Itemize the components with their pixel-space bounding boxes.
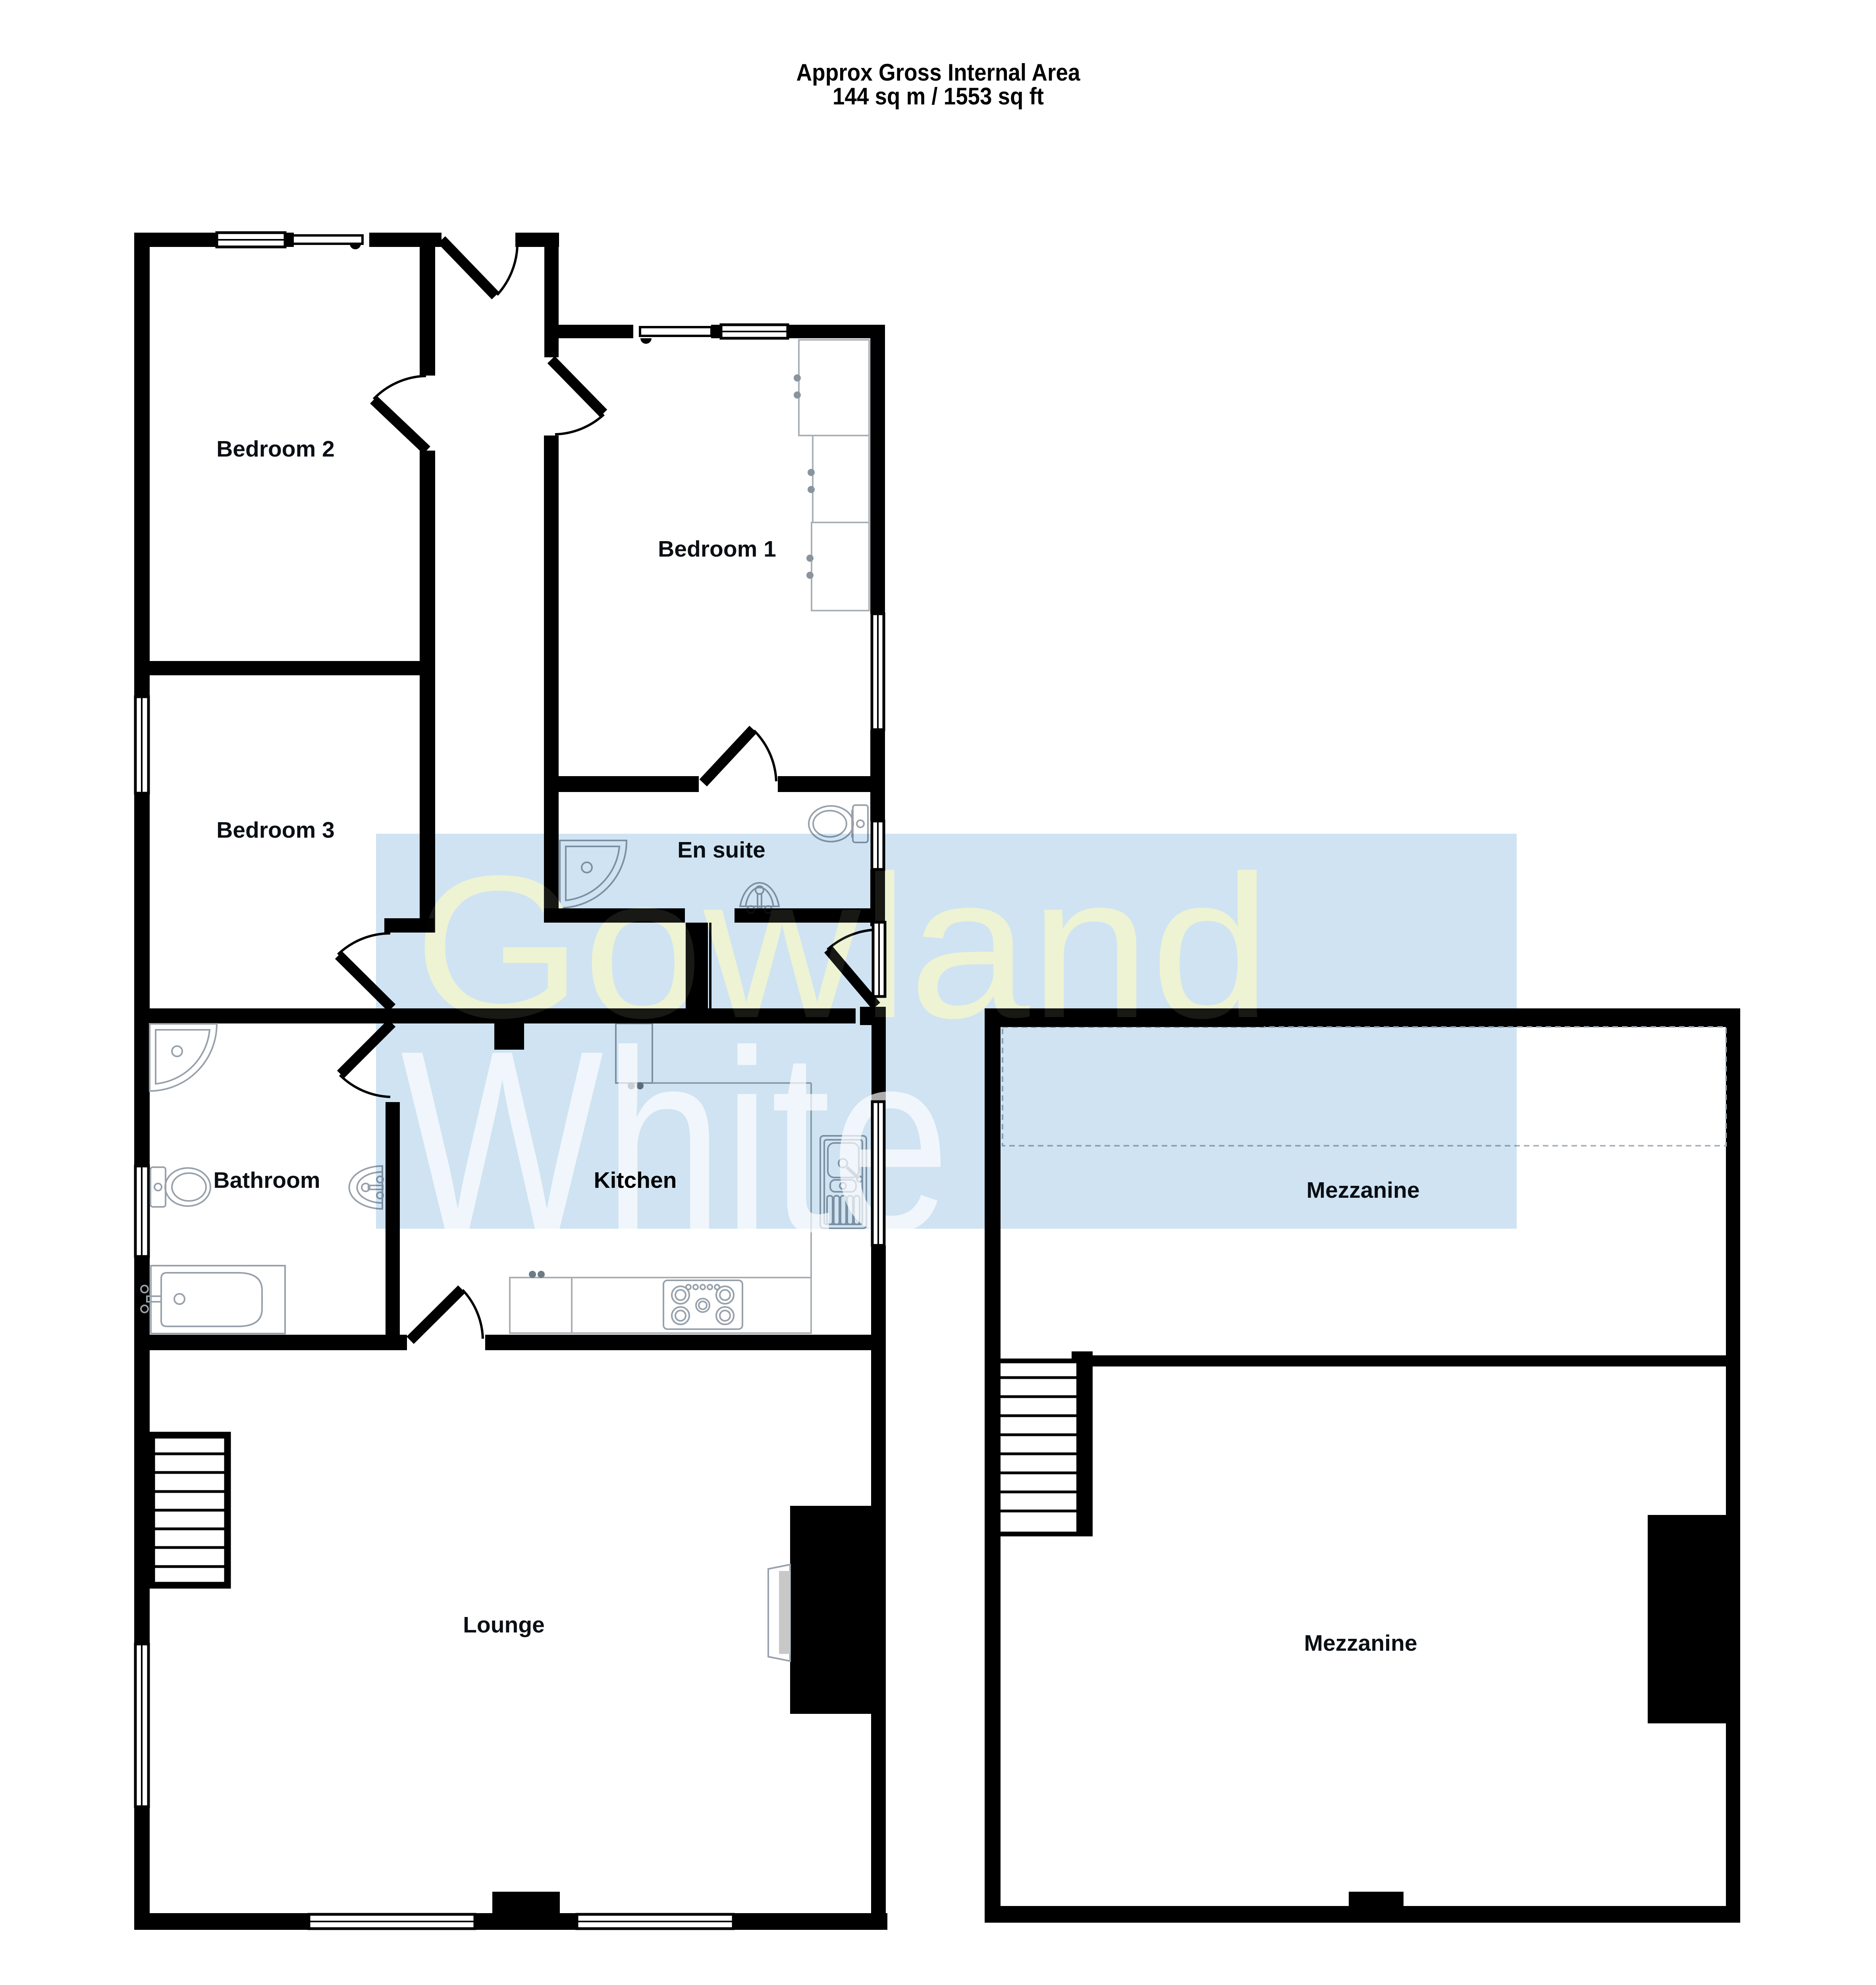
- svg-text:Bedroom 2: Bedroom 2: [216, 436, 335, 462]
- svg-text:Kitchen: Kitchen: [594, 1168, 677, 1193]
- svg-text:Bathroom: Bathroom: [213, 1168, 320, 1193]
- svg-text:Approx Gross Internal Area: Approx Gross Internal Area: [796, 59, 1081, 86]
- svg-text:White: White: [401, 997, 950, 1285]
- svg-text:Bedroom 1: Bedroom 1: [658, 536, 776, 562]
- svg-text:Lounge: Lounge: [463, 1612, 545, 1638]
- svg-text:Mezzanine: Mezzanine: [1304, 1630, 1417, 1656]
- svg-text:First Floor: First Floor: [986, 1983, 1126, 1985]
- svg-text:144 sq m / 1553 sq ft: 144 sq m / 1553 sq ft: [833, 83, 1044, 110]
- svg-text:Bedroom 3: Bedroom 3: [216, 817, 335, 843]
- svg-text:Ground Floor: Ground Floor: [136, 1983, 316, 1985]
